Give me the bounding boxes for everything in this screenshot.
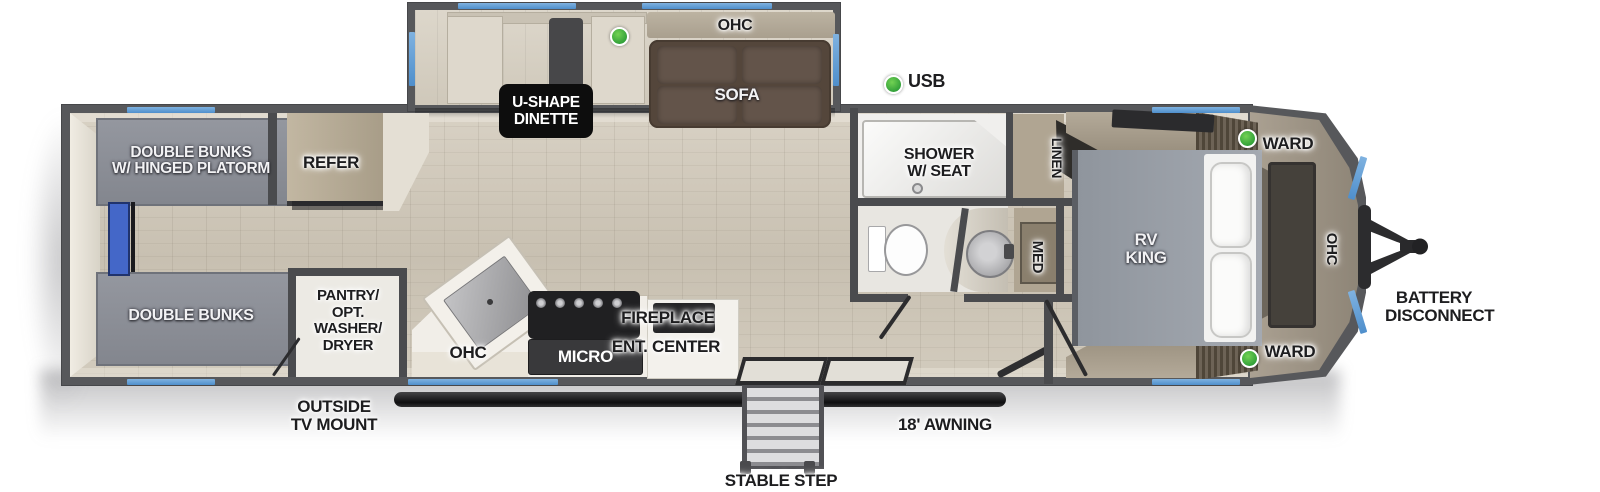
usb-indicator-icon (1240, 349, 1259, 368)
bath-divider-wall (850, 198, 1072, 206)
ohc-front-label: OHC (1323, 224, 1339, 274)
pantry-wall-left (288, 268, 296, 377)
bath-faucet (1004, 244, 1014, 259)
refrigerator-shadow (292, 201, 386, 210)
u-shape-dinette-label: U-SHAPE DINETTE (499, 84, 593, 138)
pillow (1210, 252, 1252, 338)
ohc-slide-label: OHC (700, 18, 770, 35)
sofa-label: SOFA (700, 86, 774, 104)
window-slide-top-left (458, 3, 576, 9)
hitch-tongue-icon (1358, 203, 1436, 291)
toilet (884, 224, 928, 276)
med-label: MED (1029, 232, 1045, 282)
window-top-bedroom (1152, 107, 1240, 113)
pantry-label: PANTRY/ OPT. WASHER/ DRYER (297, 288, 399, 354)
bunk-top-label: DOUBLE BUNKS W/ HINGED PLATORM (105, 145, 277, 178)
usb-indicator-icon (1238, 129, 1257, 148)
bunk-divider-line (131, 202, 135, 272)
shower-label: SHOWER W/ SEAT (895, 147, 983, 181)
usb-legend-label: USB (908, 72, 958, 91)
bunk-bottom-label: DOUBLE BUNKS (110, 308, 272, 325)
micro-label: MICRO (558, 347, 613, 367)
pantry-wall-top (288, 268, 407, 276)
bath-wall-bottom-left (850, 294, 908, 302)
dinette-bench-left (447, 16, 503, 104)
window-slide-left (409, 32, 415, 86)
window-slide-right (833, 34, 839, 86)
awning-tube (394, 392, 1006, 407)
bunk-ladder (108, 202, 130, 276)
ohc-kitchen-label: OHC (438, 344, 498, 362)
entry-screen-threshold (820, 357, 914, 385)
headboard (1268, 162, 1316, 328)
stove-burners (536, 296, 632, 310)
linen-label: LINEN (1048, 133, 1064, 183)
shower-drain (912, 183, 923, 194)
stable-step-label: STABLE STEP (716, 472, 846, 490)
sofa-back-cushion (657, 46, 737, 84)
window-bottom-bedroom (1152, 379, 1240, 385)
entry-step (742, 385, 824, 469)
sofa (649, 40, 831, 128)
pillow (1210, 162, 1252, 248)
refer-label: REFER (303, 154, 359, 172)
entry-door-threshold (735, 357, 829, 385)
battery-disconnect-label: BATTERY DISCONNECT (1385, 289, 1483, 325)
awning-label: 18' AWNING (878, 416, 1012, 434)
window-top-rear (127, 107, 215, 113)
usb-indicator-icon (884, 75, 903, 94)
wall-bath-bedroom (1056, 198, 1064, 302)
ward-top-label: WARD (1260, 135, 1316, 153)
outside-tv-mount-label: OUTSIDE TV MOUNT (282, 398, 386, 434)
pantry-wall-right (399, 268, 407, 377)
usb-indicator-icon (610, 27, 629, 46)
window-slide-top-right (642, 3, 772, 9)
window-bottom-kitchen (408, 379, 558, 385)
wall-shower-linen (1006, 112, 1013, 202)
fireplace-label: FIREPLACE (620, 309, 716, 327)
sofa-back-cushion (742, 46, 822, 84)
rv-king-label: RV KING (1106, 231, 1186, 267)
ward-bottom-label: WARD (1262, 343, 1318, 361)
window-bottom-rear (127, 379, 215, 385)
ent-center-label: ENT. CENTER (608, 338, 724, 356)
rv-floorplan: OHC SOFA U-SHAPE DINETTE USB DOUBLE BUNK… (0, 0, 1600, 492)
